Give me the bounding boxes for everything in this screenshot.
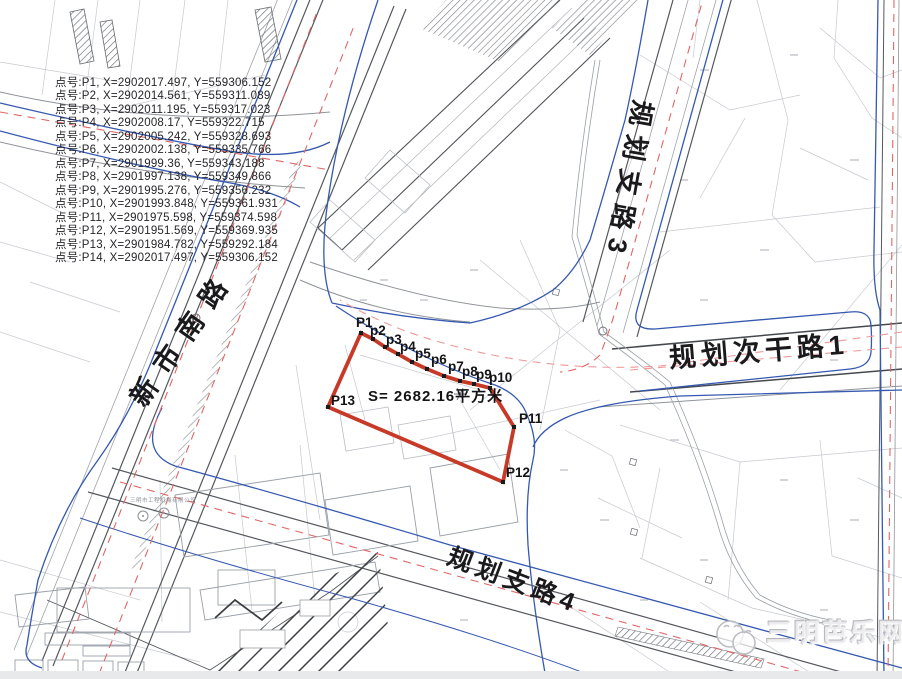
scan-edge-strip (0, 671, 902, 679)
coordinate-row: 点号:P12, X=2901951.569, Y=559369.935 (55, 226, 278, 238)
point-label-p2: p2 (370, 324, 386, 338)
point-label-p6: p6 (431, 353, 447, 367)
coordinate-row: 点号:P9, X=2901995.276, Y=559356.232 (55, 186, 271, 198)
parcel-area-label: S= 2682.16平方米 (368, 389, 503, 404)
point-label-p5: p5 (415, 347, 431, 361)
coordinate-row: 点号:P3, X=2902011.195, Y=559317.023 (55, 105, 270, 117)
coordinate-row: 点号:P13, X=2901984.782, Y=559292.184 (55, 240, 278, 252)
coordinate-row: 点号:P6, X=2902002.138, Y=559335.766 (55, 145, 271, 157)
coordinate-row: 点号:P1, X=2902017.497, Y=559306.152 (55, 78, 271, 90)
point-label-p10: p10 (489, 371, 512, 385)
company-name-label: 三明市工程机械有限公司 (130, 499, 196, 505)
coordinate-row: 点号:P8, X=2901997.138, Y=559349.866 (55, 172, 271, 184)
point-label-p4: p4 (400, 340, 416, 354)
planning-map-canvas: 点号:P1, X=2902017.497, Y=559306.152 点号:P2… (0, 0, 902, 679)
point-label-p13: P13 (331, 394, 355, 408)
coordinate-row: 点号:P5, X=2902005.242, Y=559328.693 (55, 132, 271, 144)
coordinate-row: 点号:P7, X=2901999.36, Y=559343.188 (55, 159, 265, 171)
watermark-text: 三明芭乐网 (766, 621, 902, 646)
coordinate-row: 点号:P14, X=2902017.497, Y=559306.152 (55, 253, 278, 265)
point-label-p11: P11 (519, 412, 542, 426)
coordinate-row: 点号:P4, X=2902008.17, Y=559322.715 (55, 118, 265, 130)
coordinate-row: 点号:P2, X=2902014.561, Y=559311.089 (55, 91, 270, 103)
coordinate-row: 点号:P11, X=2901975.598, Y=559374.598 (55, 213, 277, 225)
coordinate-row: 点号:P10, X=2901993.848, Y=559361.931 (55, 199, 278, 211)
point-label-p12: P12 (506, 466, 530, 480)
